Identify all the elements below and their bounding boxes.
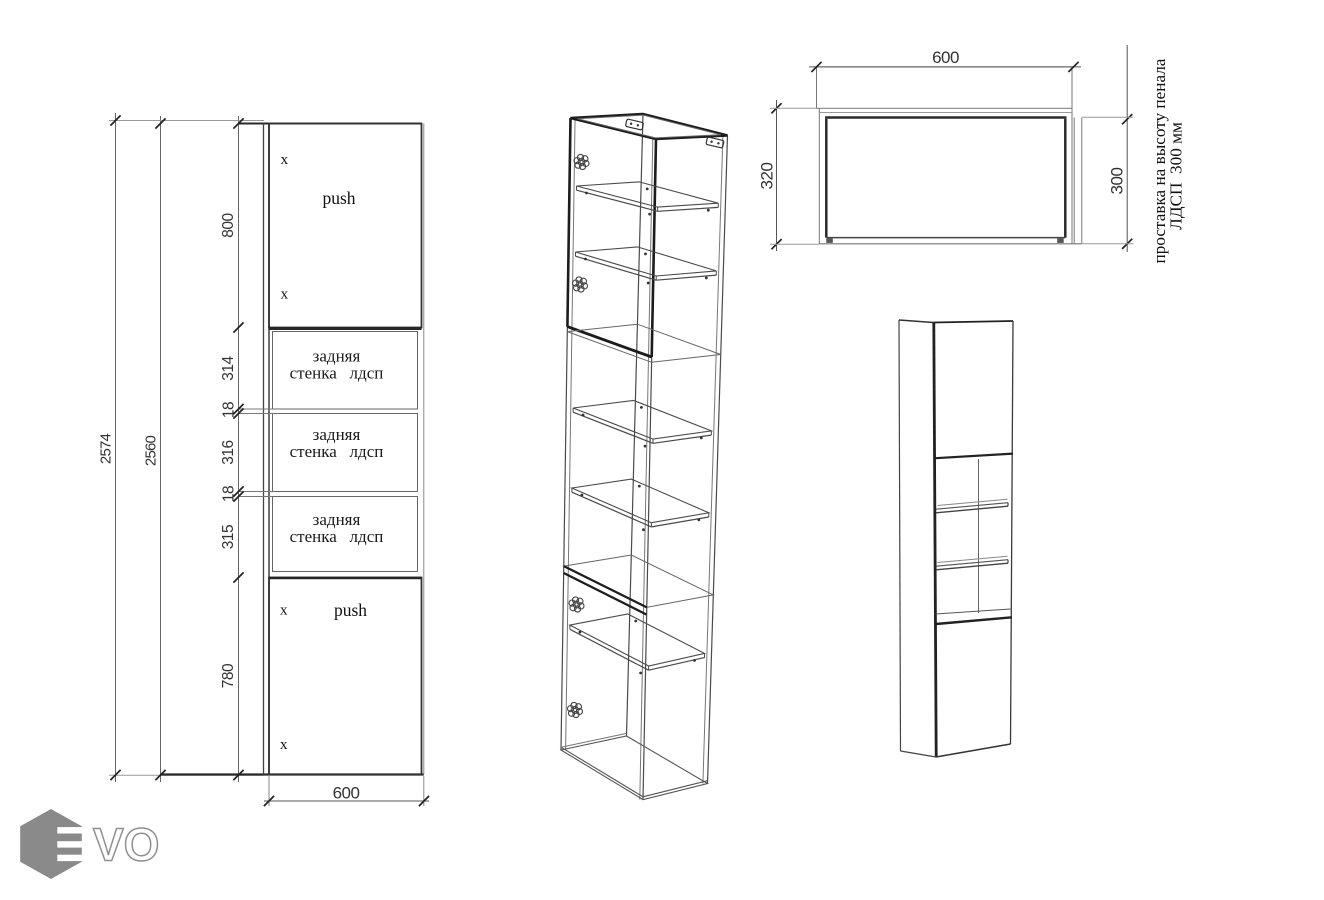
svg-text:600: 600 [333, 784, 360, 803]
svg-text:18: 18 [221, 402, 238, 418]
svg-text:600: 600 [932, 48, 959, 67]
svg-text:push: push [322, 188, 355, 208]
svg-text:push: push [334, 600, 367, 620]
svg-text:315: 315 [220, 525, 237, 549]
svg-text:x: x [281, 287, 289, 303]
svg-text:18: 18 [221, 486, 238, 502]
svg-text:780: 780 [220, 663, 237, 688]
svg-text:316: 316 [220, 440, 237, 464]
svg-text:x: x [281, 152, 289, 168]
svg-text:314: 314 [220, 355, 237, 380]
svg-text:320: 320 [758, 163, 777, 190]
svg-text:стенка лдсп: стенка лдсп [290, 527, 384, 546]
svg-text:стенка лдсп: стенка лдсп [290, 364, 384, 383]
svg-text:x: x [280, 603, 288, 619]
svg-text:2574: 2574 [98, 433, 115, 464]
svg-text:800: 800 [220, 212, 237, 237]
svg-text:x: x [280, 737, 288, 753]
svg-text:VO: VO [93, 819, 159, 871]
svg-text:300: 300 [1108, 168, 1127, 195]
svg-text:ЛДСП 300 мм: ЛДСП 300 мм [1167, 122, 1186, 230]
svg-text:2560: 2560 [143, 435, 160, 466]
svg-text:стенка лдсп: стенка лдсп [290, 442, 384, 461]
